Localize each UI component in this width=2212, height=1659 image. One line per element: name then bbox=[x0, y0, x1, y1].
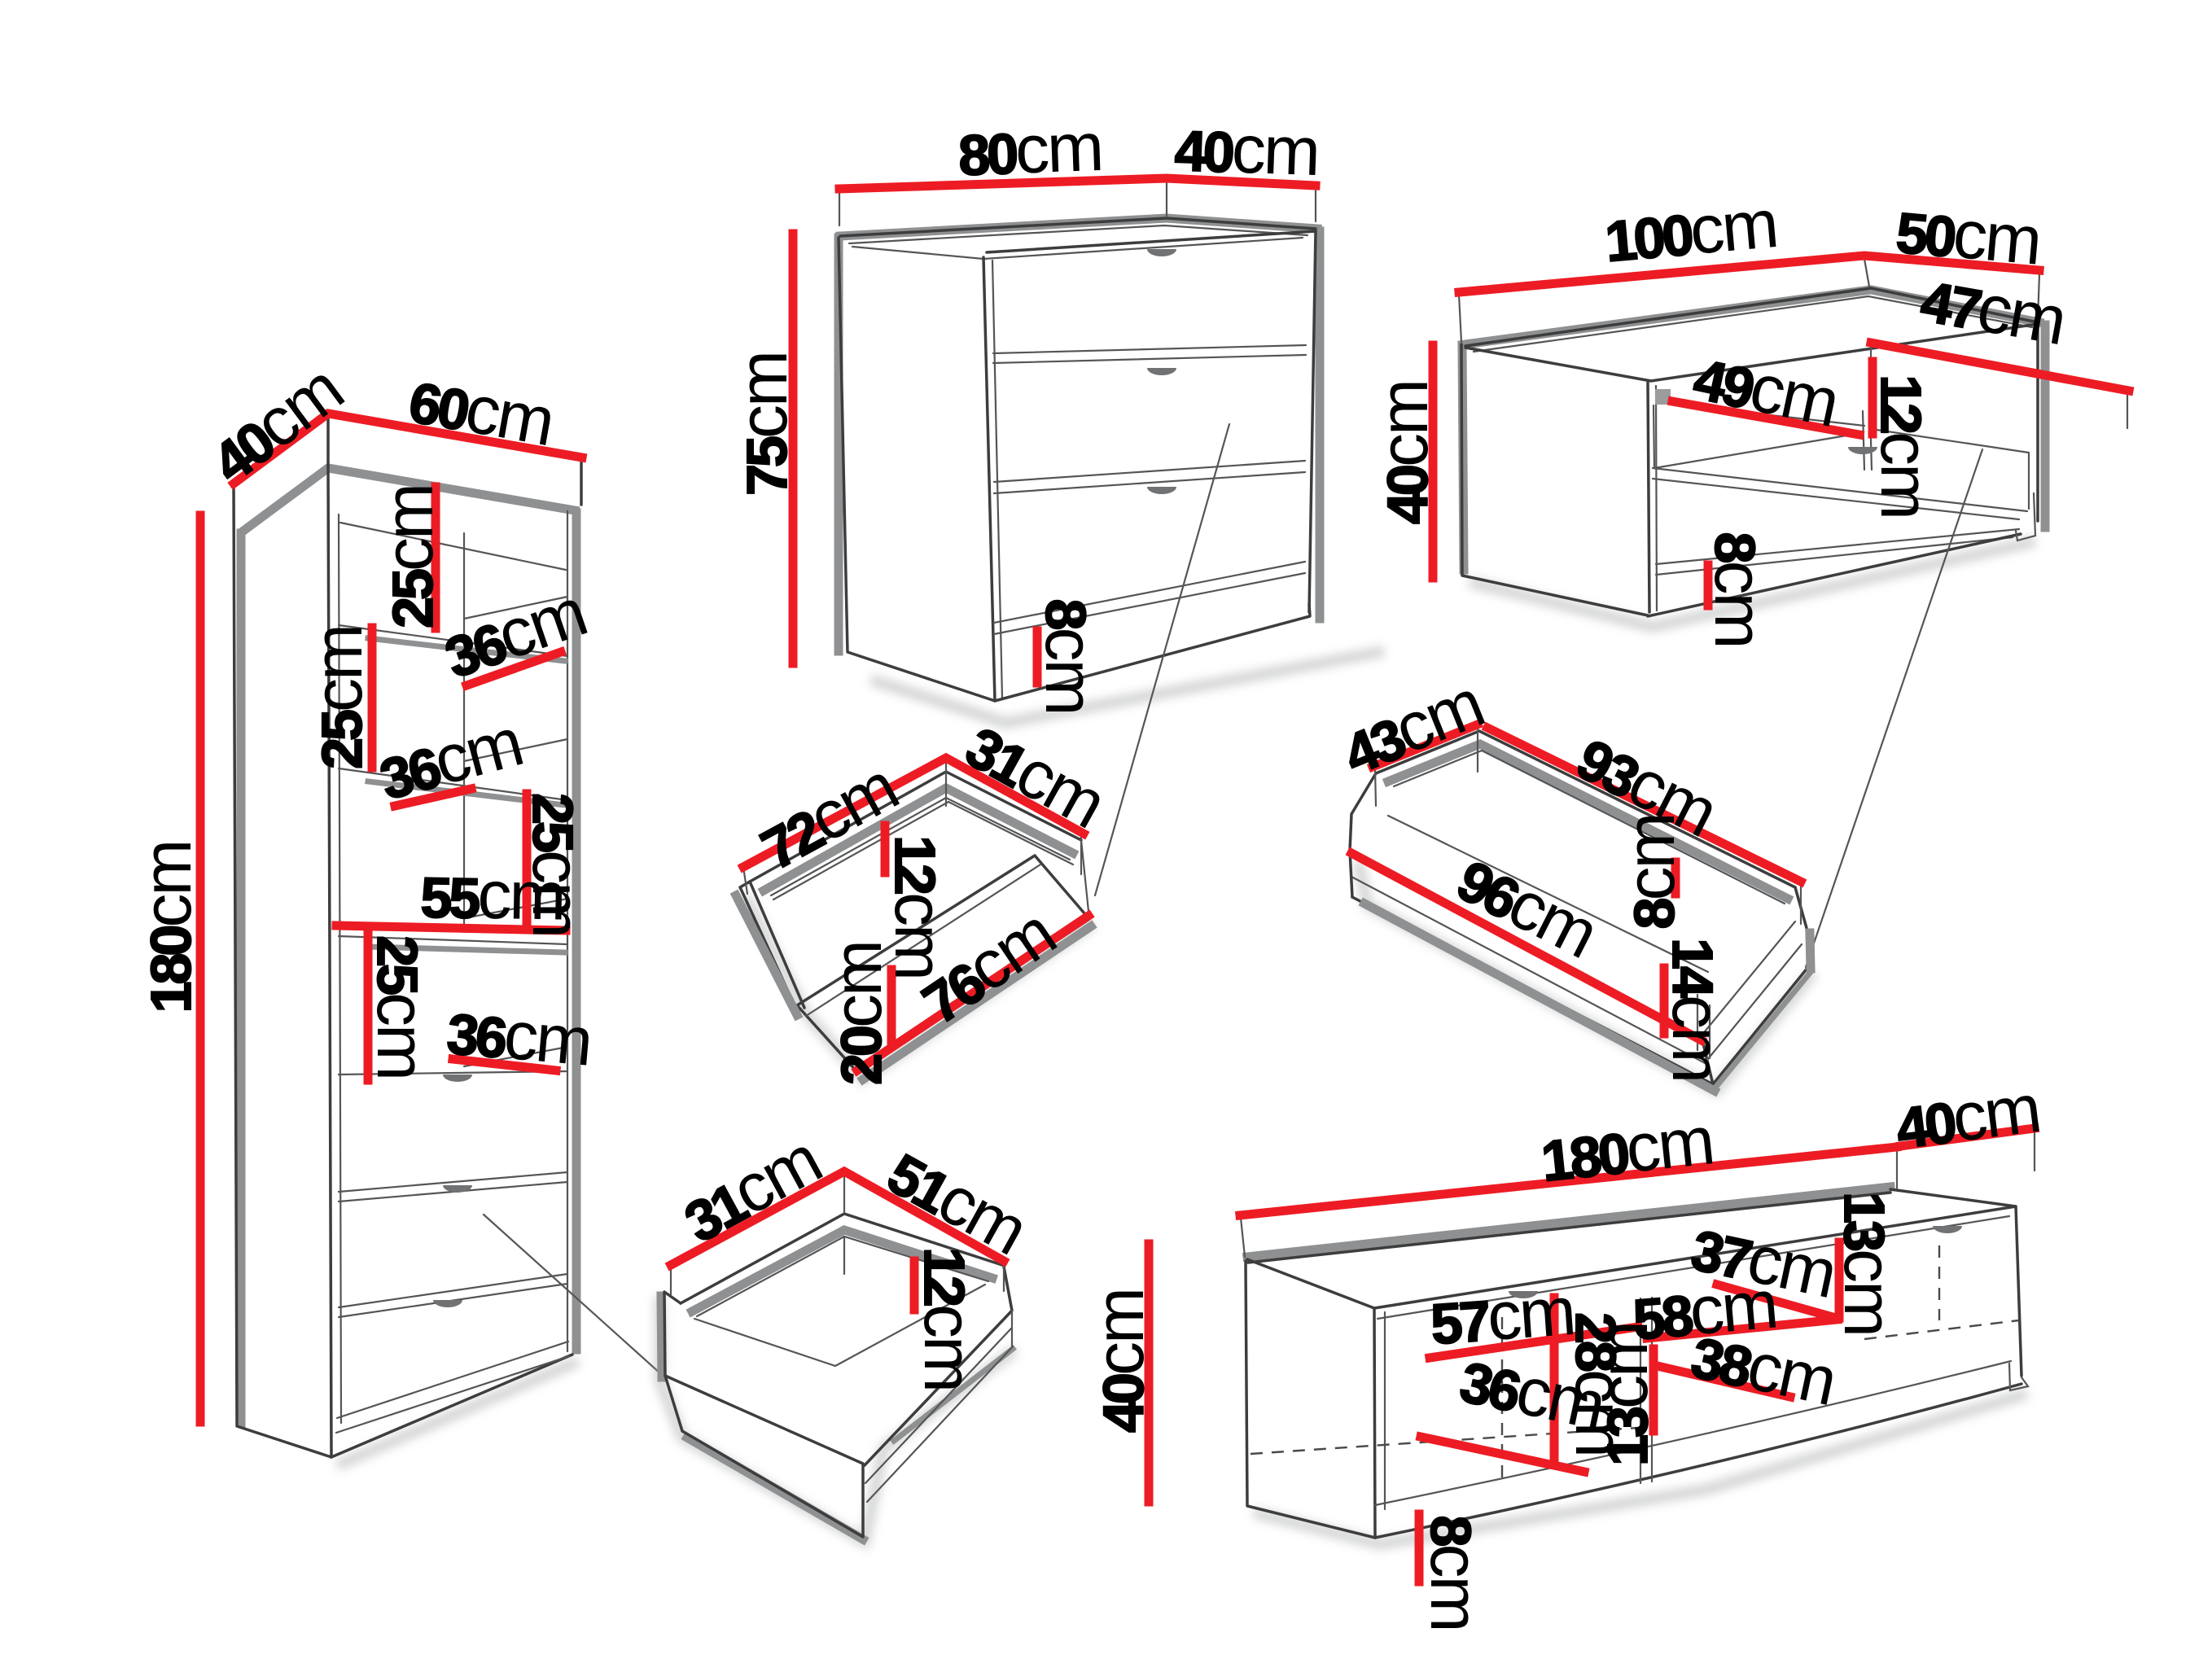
svg-text:75cm: 75cm bbox=[725, 352, 801, 496]
svg-text:25cm: 25cm bbox=[370, 485, 447, 628]
svg-text:50cm: 50cm bbox=[1894, 190, 2043, 279]
svg-text:8cm: 8cm bbox=[1417, 1516, 1493, 1631]
svg-text:13cm: 13cm bbox=[1830, 1192, 1907, 1335]
svg-text:8cm: 8cm bbox=[1612, 815, 1689, 930]
svg-text:180cm: 180cm bbox=[129, 842, 205, 1013]
svg-text:40cm: 40cm bbox=[1365, 381, 1442, 524]
svg-text:13cm: 13cm bbox=[1585, 1323, 1662, 1466]
svg-text:12cm: 12cm bbox=[1867, 374, 1943, 518]
svg-text:25cm: 25cm bbox=[363, 935, 440, 1079]
svg-text:20cm: 20cm bbox=[819, 942, 896, 1085]
svg-text:40cm: 40cm bbox=[1081, 1289, 1158, 1433]
svg-text:40cm: 40cm bbox=[1173, 108, 1319, 190]
svg-text:36cm: 36cm bbox=[445, 991, 594, 1080]
svg-text:8cm: 8cm bbox=[1032, 599, 1108, 714]
svg-text:14cm: 14cm bbox=[1658, 938, 1735, 1081]
svg-text:25cm: 25cm bbox=[300, 626, 376, 769]
svg-text:8cm: 8cm bbox=[1701, 532, 1777, 647]
svg-text:12cm: 12cm bbox=[910, 1247, 987, 1390]
svg-text:55cm: 55cm bbox=[420, 855, 564, 934]
